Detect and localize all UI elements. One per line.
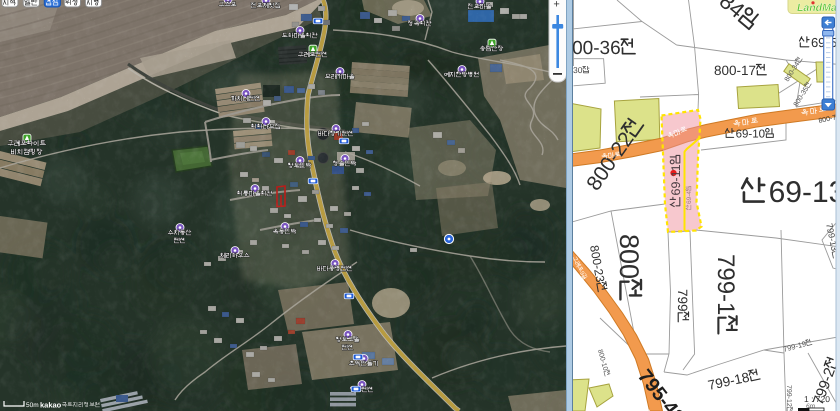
svg-text:69-139: 69-139 — [769, 176, 840, 209]
svg-text:50m: 50m — [26, 402, 39, 409]
svg-text:69-4: 69-4 — [686, 191, 693, 204]
svg-text:799: 799 — [675, 289, 690, 312]
svg-text:LandMap: LandMap — [797, 2, 840, 14]
svg-text:69-10: 69-10 — [736, 129, 765, 141]
svg-text:69-11: 69-11 — [669, 164, 683, 195]
svg-text:800: 800 — [614, 234, 644, 279]
svg-text:kakao: kakao — [40, 401, 62, 410]
svg-text:799-12: 799-12 — [785, 385, 792, 407]
svg-text:800-17: 800-17 — [714, 63, 756, 78]
svg-text:799-1: 799-1 — [712, 254, 739, 315]
svg-text:+: + — [553, 0, 559, 11]
